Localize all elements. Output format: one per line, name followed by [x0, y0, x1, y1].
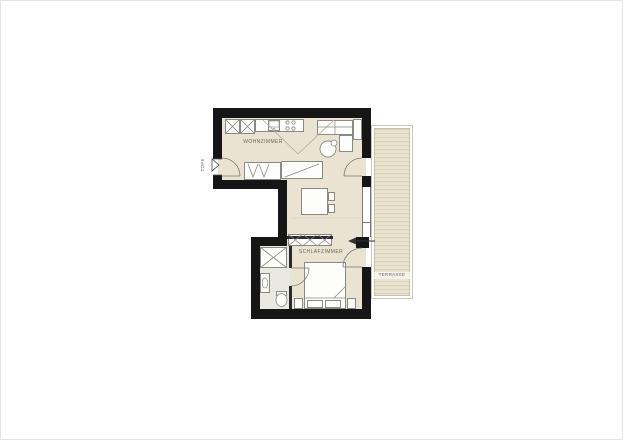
- pillow: [325, 300, 341, 308]
- wall: [362, 108, 371, 158]
- kitchen-cabinet: [225, 119, 240, 134]
- washbasin: [260, 273, 270, 293]
- chair: [328, 192, 335, 201]
- pillow: [307, 300, 323, 308]
- room-label-schlafzimmer: SCHLAFZIMMER: [297, 250, 345, 255]
- wall: [251, 309, 371, 319]
- kitchen-sink: [268, 120, 280, 131]
- floor-plan: WOHNZIMMER SCHLAFZIMMER TERRASSE TOP5: [0, 0, 623, 440]
- wall: [289, 246, 292, 268]
- wall: [213, 108, 371, 118]
- wall: [251, 237, 260, 319]
- wall: [287, 236, 333, 239]
- toilet-tank: [276, 291, 287, 296]
- wall: [362, 176, 371, 187]
- sideboard-with-chairs: [244, 162, 281, 180]
- wall: [362, 267, 371, 319]
- window: [362, 187, 371, 237]
- terrace-deck: [374, 128, 410, 296]
- window-mullion: [362, 222, 371, 223]
- wall: [213, 108, 222, 159]
- shower: [260, 247, 287, 268]
- room-label-terrasse: TERRASSE: [374, 272, 410, 279]
- corner-sofa: [317, 120, 353, 135]
- kitchen-cabinet: [240, 119, 255, 134]
- unit-label-top5: TOP5: [201, 155, 209, 175]
- wall: [213, 180, 287, 189]
- nightstand: [347, 298, 356, 309]
- nightstand: [294, 298, 303, 309]
- wall: [289, 286, 292, 310]
- chair: [328, 204, 335, 213]
- tall-cabinet: [353, 119, 362, 140]
- sideboard: [281, 161, 323, 179]
- room-label-wohnzimmer: WOHNZIMMER: [241, 140, 285, 145]
- corner-sofa-chaise: [339, 135, 353, 152]
- desk: [301, 188, 328, 215]
- wall: [356, 237, 369, 248]
